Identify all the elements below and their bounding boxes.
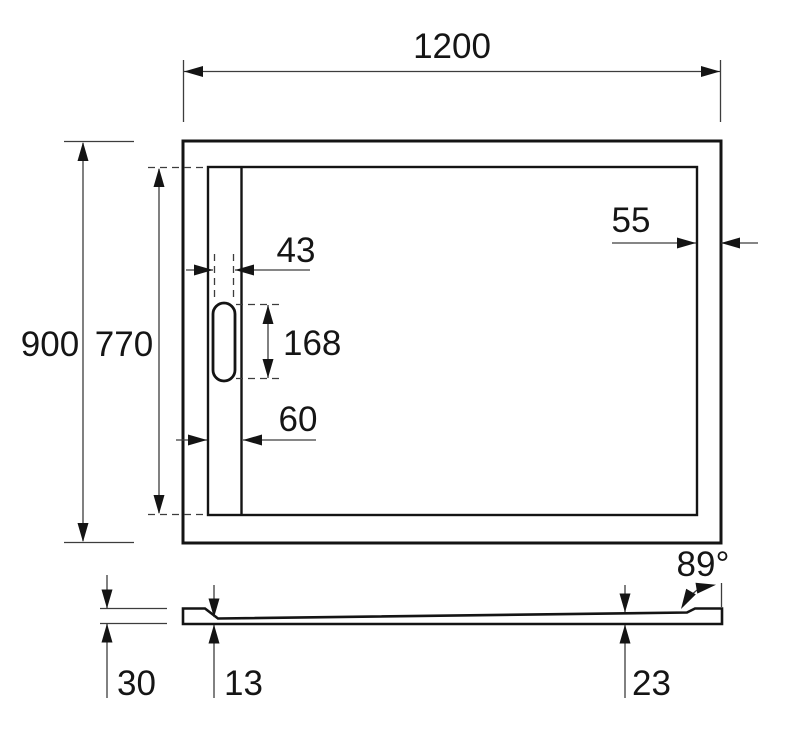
arrowhead-left bbox=[243, 435, 262, 446]
arrowhead-up bbox=[154, 168, 165, 187]
dim-drain-length: 168 bbox=[263, 305, 342, 378]
dim-label-89deg: 89° bbox=[677, 545, 730, 584]
dim-label-30: 30 bbox=[117, 664, 156, 703]
arrowhead-down bbox=[209, 599, 220, 618]
arrowhead-arc-start bbox=[681, 589, 696, 609]
dim-edge-height: 30 bbox=[100, 575, 167, 703]
dim-end-thickness: 23 bbox=[620, 585, 671, 703]
arrowhead-up bbox=[78, 142, 89, 161]
dim-label-55: 55 bbox=[612, 201, 651, 240]
arrowhead-down bbox=[78, 523, 89, 542]
arrowhead-left bbox=[184, 66, 203, 77]
dim-wall-angle: 89° bbox=[677, 545, 730, 609]
dim-label-168: 168 bbox=[283, 324, 341, 363]
arrowhead-up bbox=[102, 624, 113, 643]
shower-tray-drawing: 1200 900 770 43 bbox=[0, 0, 800, 744]
dim-min-thickness: 13 bbox=[209, 585, 263, 703]
dim-label-1200: 1200 bbox=[413, 27, 491, 66]
tray-section-profile bbox=[183, 609, 722, 625]
drain-oval bbox=[213, 303, 235, 381]
dim-rim-width: 55 bbox=[612, 201, 758, 249]
arrowhead-right bbox=[701, 66, 720, 77]
arrowhead-right bbox=[677, 238, 696, 249]
arrowhead-down bbox=[620, 594, 631, 613]
arrowhead-up bbox=[263, 305, 274, 324]
arrowhead-right bbox=[188, 435, 207, 446]
plan-view: 1200 900 770 43 bbox=[21, 27, 758, 543]
dim-inner-depth: 770 bbox=[95, 168, 206, 515]
dim-overall-width: 1200 bbox=[184, 27, 721, 122]
arrowhead-down bbox=[102, 590, 113, 609]
dim-label-23: 23 bbox=[632, 664, 671, 703]
arrowhead-arc-end bbox=[696, 583, 717, 594]
dim-label-900: 900 bbox=[21, 325, 79, 364]
dim-label-13: 13 bbox=[224, 664, 263, 703]
dim-label-43: 43 bbox=[277, 231, 316, 270]
dim-label-770: 770 bbox=[95, 325, 153, 364]
arrowhead-down bbox=[263, 359, 274, 378]
arrowhead-down bbox=[154, 495, 165, 514]
dim-drain-width: 43 bbox=[186, 231, 315, 276]
dim-channel-width: 60 bbox=[176, 400, 317, 446]
dim-label-60: 60 bbox=[279, 400, 318, 439]
arrowhead-right bbox=[194, 265, 213, 276]
arrowhead-up bbox=[620, 625, 631, 644]
arrowhead-up bbox=[209, 625, 220, 644]
arrowhead-left bbox=[235, 265, 254, 276]
technical-drawing-page: 1200 900 770 43 bbox=[0, 0, 800, 744]
arrowhead-left bbox=[721, 238, 740, 249]
section-view: 30 13 23 89° bbox=[100, 545, 729, 703]
